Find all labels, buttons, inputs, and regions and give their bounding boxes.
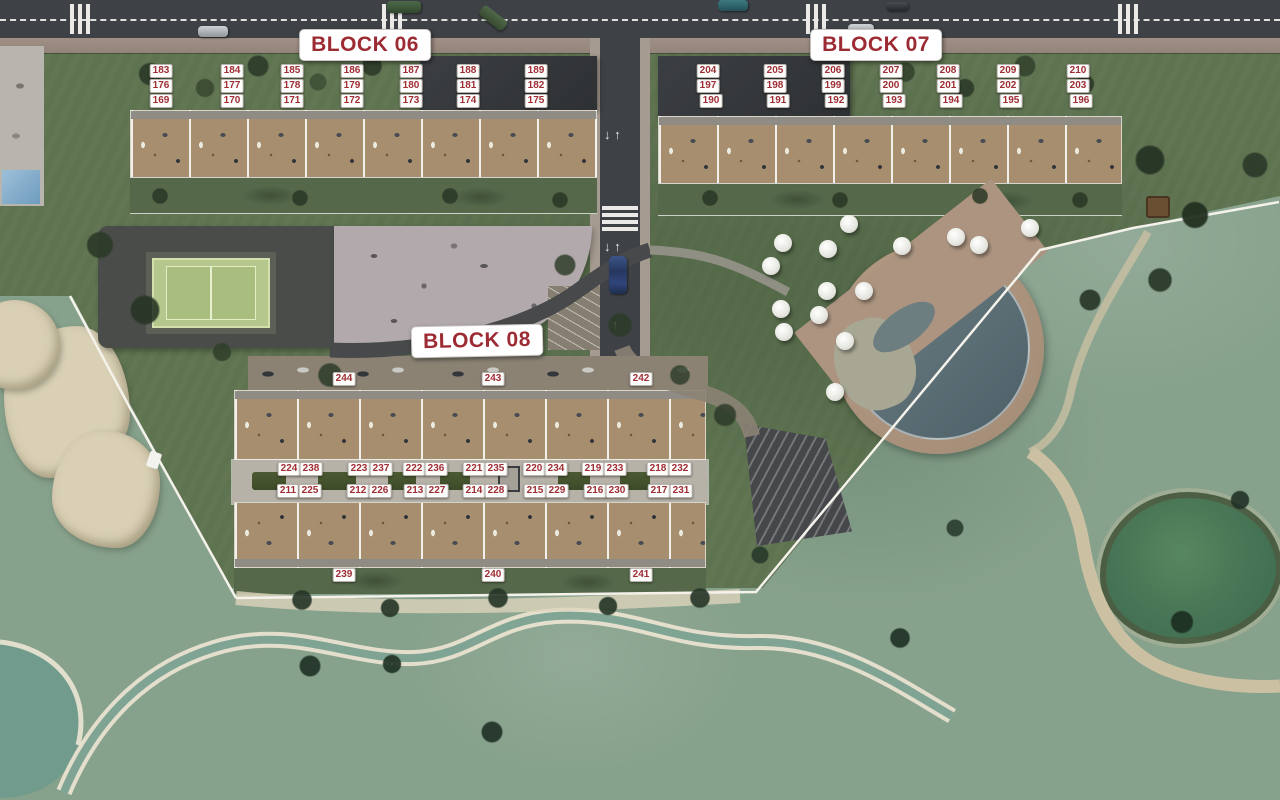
block-07-label: BLOCK 07 [810, 29, 942, 61]
block-labels-layer: BLOCK 06 BLOCK 07 BLOCK 08 [0, 0, 1280, 800]
block-08-label: BLOCK 08 [411, 324, 544, 359]
block-06-label: BLOCK 06 [299, 29, 431, 61]
site-plan-canvas: ↓ ↑ ↓ ↑ ↑ [0, 0, 1280, 800]
